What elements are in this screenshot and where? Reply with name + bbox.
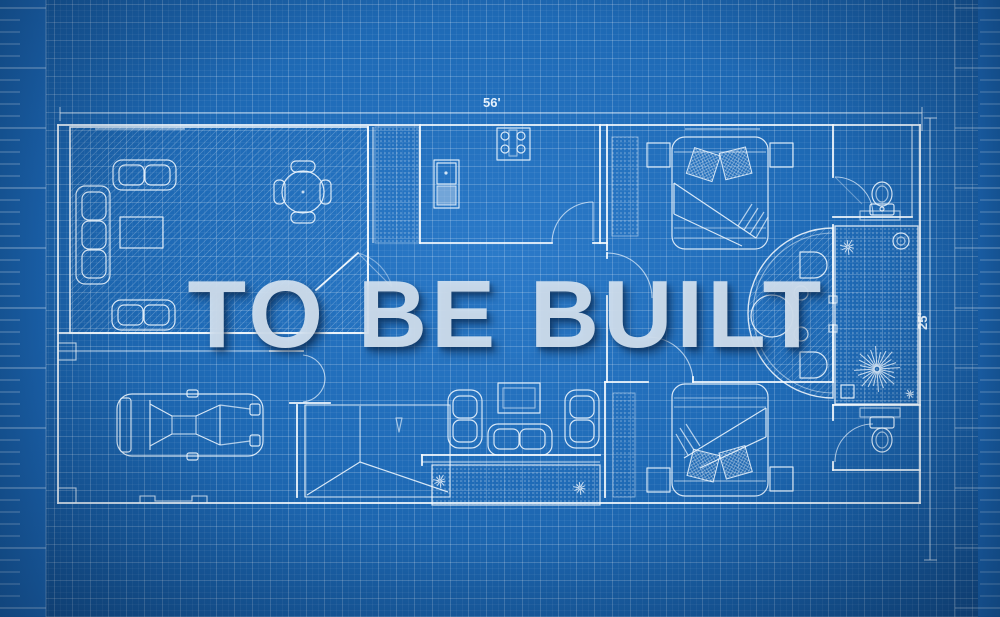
vanity bbox=[860, 408, 900, 417]
deck bbox=[835, 226, 918, 404]
stairs bbox=[305, 405, 450, 497]
bathroom-1 bbox=[833, 125, 912, 220]
nightstand bbox=[770, 467, 793, 491]
armchair bbox=[565, 390, 599, 448]
stove bbox=[497, 128, 530, 160]
toilet bbox=[870, 417, 894, 452]
nightstand bbox=[770, 143, 793, 167]
closet-1 bbox=[612, 137, 638, 236]
pillow bbox=[686, 148, 720, 182]
bed-2 bbox=[672, 384, 768, 496]
watermark-text: TO BE BUILT bbox=[187, 260, 825, 370]
direction-arrow bbox=[396, 418, 402, 432]
nightstand bbox=[647, 468, 670, 492]
refrigerator-sink-unit bbox=[434, 160, 459, 208]
porch-post bbox=[58, 488, 76, 503]
mudroom bbox=[375, 127, 419, 243]
right-edge-ruler bbox=[955, 0, 1000, 617]
bed-1 bbox=[672, 137, 768, 249]
closet-2 bbox=[613, 393, 635, 497]
pillow bbox=[719, 147, 752, 180]
car bbox=[117, 390, 263, 460]
garage-door-notch bbox=[140, 496, 207, 503]
width-dimension-label: 56' bbox=[483, 95, 501, 110]
nightstand bbox=[647, 143, 670, 167]
bathroom-2 bbox=[833, 405, 920, 470]
armchair bbox=[448, 390, 482, 448]
porch bbox=[432, 465, 600, 505]
toilet bbox=[870, 182, 894, 215]
pillow bbox=[687, 449, 720, 482]
loveseat bbox=[488, 424, 552, 455]
blueprint-canvas: 56' 25' bbox=[0, 0, 1000, 617]
left-edge-ruler bbox=[0, 0, 46, 617]
family-room bbox=[422, 383, 600, 465]
